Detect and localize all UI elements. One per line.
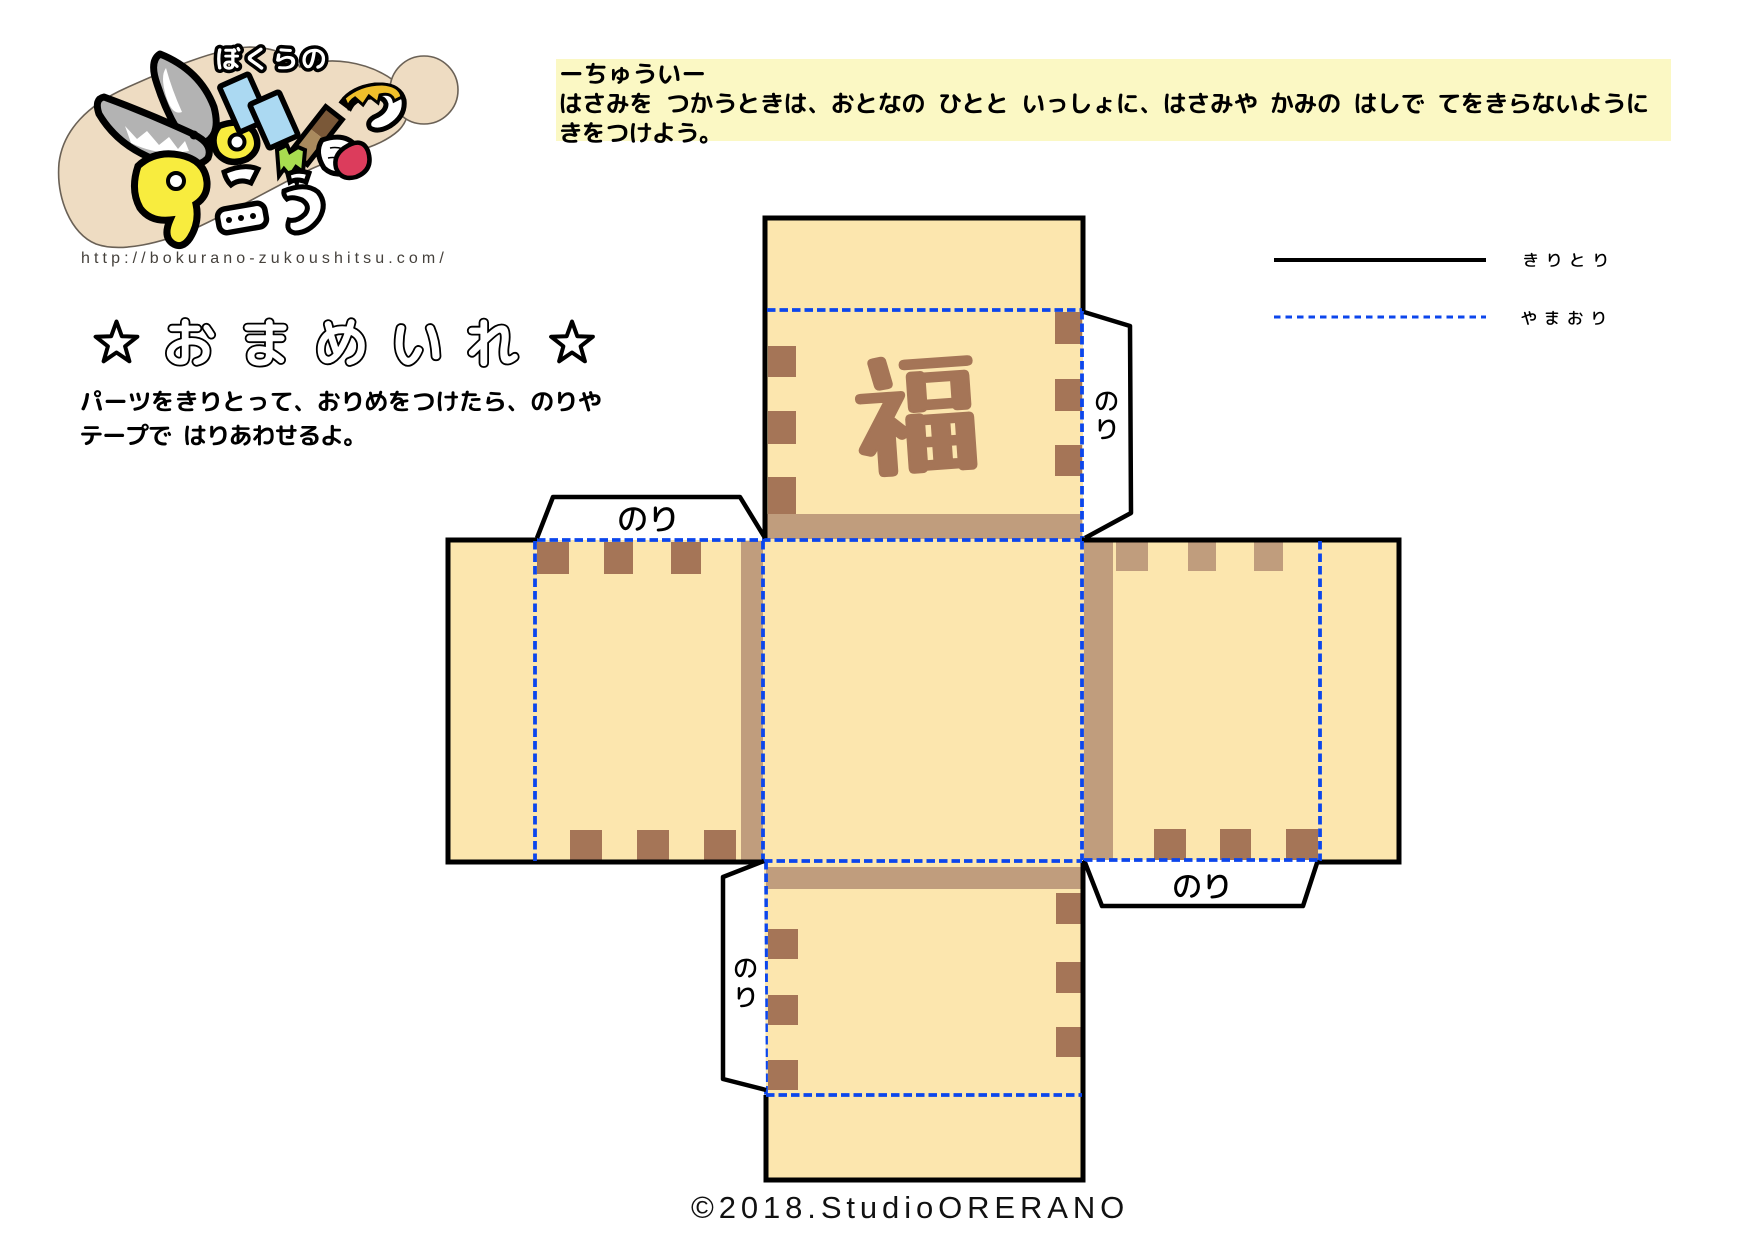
svg-text:http://bokurano-zukoushitsu.co: http://bokurano-zukoushitsu.com/ — [81, 250, 448, 267]
svg-text:©2018.StudioORERANO: ©2018.StudioORERANO — [691, 1190, 1129, 1225]
